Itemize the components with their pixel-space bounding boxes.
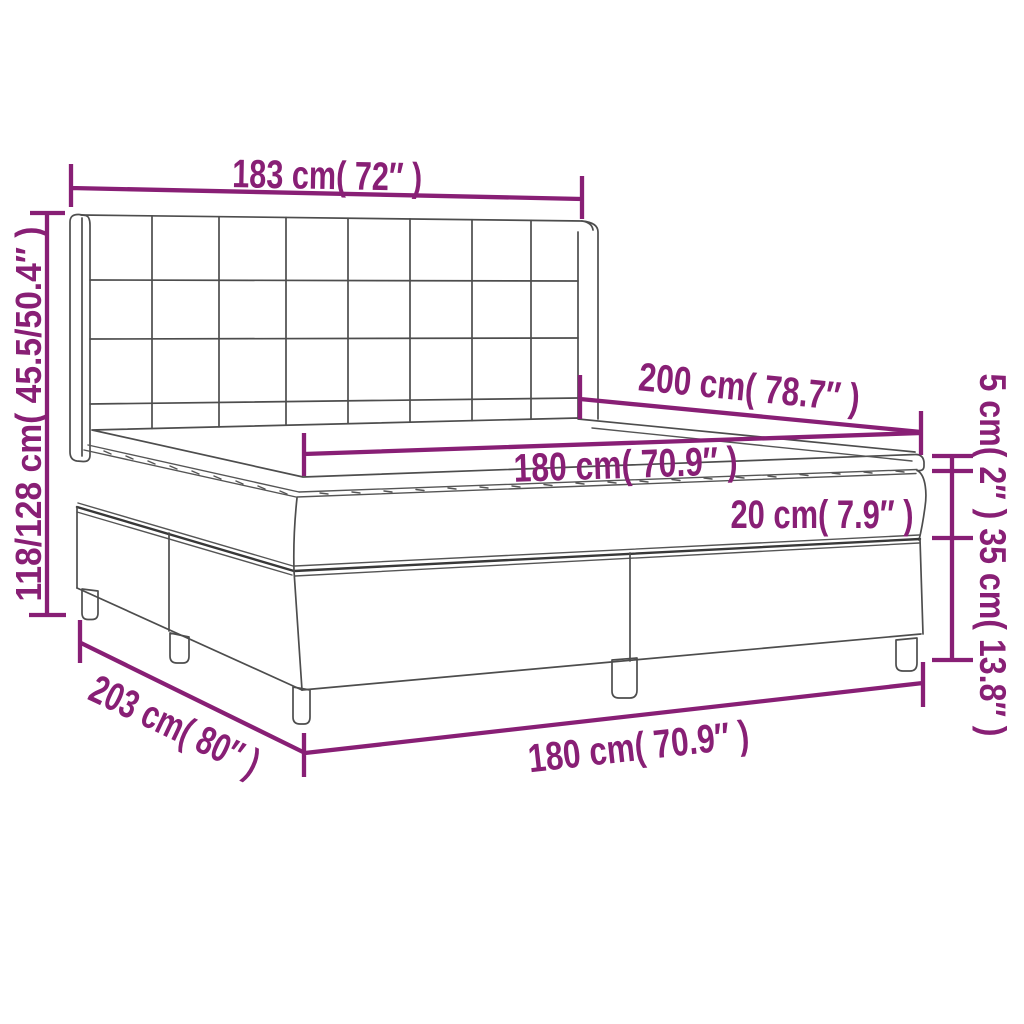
svg-text:183 cm( 72″ ): 183 cm( 72″ ) bbox=[232, 152, 423, 200]
svg-text:180 cm( 70.9″ ): 180 cm( 70.9″ ) bbox=[513, 439, 738, 491]
svg-text:5 cm( 2″ ) 35 cm( 13.8″ ): 5 cm( 2″ ) 35 cm( 13.8″ ) bbox=[972, 374, 1013, 737]
svg-text:20 cm( 7.9″ ): 20 cm( 7.9″ ) bbox=[731, 493, 914, 537]
svg-text:118/128 cm( 45.5/50.4″ ): 118/128 cm( 45.5/50.4″ ) bbox=[8, 227, 49, 602]
